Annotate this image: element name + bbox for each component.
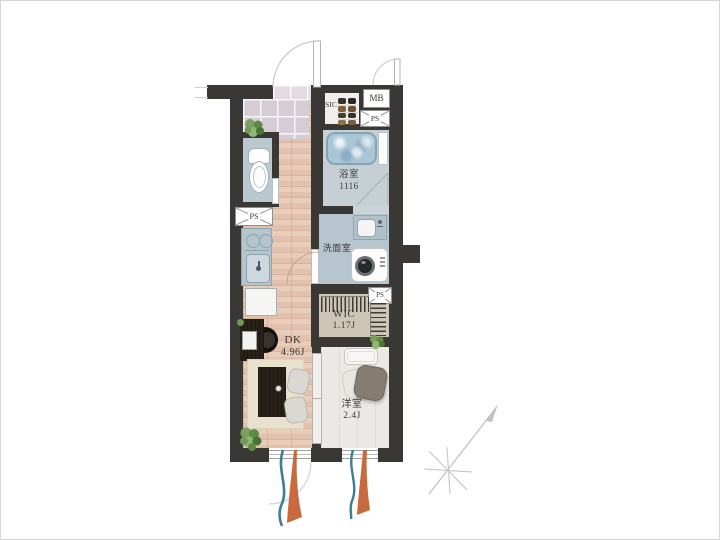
wall-hall-bath bbox=[311, 130, 323, 214]
bathroom-doorway-floor bbox=[353, 206, 389, 214]
wall-toilet-right bbox=[272, 132, 279, 178]
wic-name: WIC bbox=[328, 309, 360, 321]
bathroom-name: 浴室 bbox=[332, 170, 366, 181]
ps-top-label: PS bbox=[369, 115, 381, 123]
neighbor-line-1 bbox=[195, 87, 208, 88]
kitchen-sink-icon bbox=[246, 254, 270, 283]
toilet-door bbox=[272, 178, 279, 204]
pipe-space-left: PS bbox=[235, 207, 273, 226]
wall-bottom-c bbox=[378, 448, 403, 462]
wall-right-protrusion bbox=[403, 245, 420, 263]
wic-label: WIC 1.17J bbox=[328, 309, 360, 333]
cushion-gray bbox=[352, 364, 388, 403]
bedroom-name: 洋室 bbox=[336, 399, 368, 411]
wall-bottom-a bbox=[230, 448, 269, 462]
curtain-icon bbox=[351, 450, 370, 519]
desk-plant-icon bbox=[237, 319, 244, 326]
bathroom-label: 浴室 1116 bbox=[332, 170, 366, 192]
shoe-rack-icon bbox=[337, 96, 358, 123]
dk-size: 4.96J bbox=[277, 347, 309, 359]
bathroom-door-panel bbox=[378, 132, 388, 165]
mb-door-arc bbox=[373, 59, 400, 85]
window-bedroom bbox=[342, 448, 378, 462]
toilet-icon bbox=[247, 146, 271, 198]
entrance-doorway-tile bbox=[273, 85, 311, 99]
bedroom-size: 2.4J bbox=[336, 411, 368, 422]
bathroom-size: 1116 bbox=[332, 181, 366, 192]
wic-size: 1.17J bbox=[328, 321, 360, 332]
dining-chair bbox=[283, 395, 309, 424]
sic-label: SIC bbox=[323, 101, 339, 110]
dk-label: DK 4.96J bbox=[277, 334, 309, 359]
stove-burner-icon bbox=[259, 234, 273, 248]
ps-mid-label: PS bbox=[374, 292, 386, 299]
balcony-door-arc bbox=[269, 462, 311, 504]
ps-left-label: PS bbox=[248, 213, 261, 221]
refrigerator-space bbox=[245, 288, 277, 316]
dining-table bbox=[258, 367, 286, 417]
wall-wic-bottom bbox=[311, 337, 403, 347]
kitchen-counter bbox=[241, 228, 272, 286]
wall-washroom-left bbox=[311, 214, 319, 249]
wall-right bbox=[389, 85, 403, 462]
north-arrow-icon bbox=[424, 404, 498, 494]
bed-pillow-icon bbox=[344, 348, 378, 365]
pipe-space-mid: PS bbox=[368, 287, 392, 304]
sliding-door-joint bbox=[312, 398, 322, 399]
desk-appliance bbox=[242, 331, 257, 350]
bedroom-label: 洋室 2.4J bbox=[336, 399, 368, 422]
washing-machine-icon bbox=[351, 248, 388, 282]
stove-burner-icon bbox=[246, 234, 260, 248]
neighbor-line-2 bbox=[195, 97, 208, 98]
pipe-space-top: PS bbox=[360, 110, 390, 127]
mb-door-leaf bbox=[395, 59, 401, 85]
bathtub-icon bbox=[326, 132, 377, 165]
wall-bottom-b bbox=[311, 448, 342, 462]
dk-name: DK bbox=[277, 334, 309, 347]
washroom-door bbox=[311, 249, 319, 284]
meter-box: MB bbox=[363, 89, 390, 108]
window-dk bbox=[269, 448, 311, 462]
entrance-door-arc bbox=[273, 41, 321, 87]
entrance-door-leaf bbox=[314, 41, 321, 87]
wall-wic-left bbox=[311, 284, 319, 345]
washbasin-icon bbox=[353, 215, 387, 240]
floorplan-canvas: MB PS PS PS bbox=[0, 0, 720, 540]
wall-bath-bottom bbox=[311, 206, 353, 214]
curtain-icon bbox=[279, 450, 302, 526]
washroom-label: 洗面室 bbox=[320, 243, 354, 254]
mb-label: MB bbox=[367, 94, 385, 103]
hanger-rack-icon bbox=[371, 303, 386, 336]
